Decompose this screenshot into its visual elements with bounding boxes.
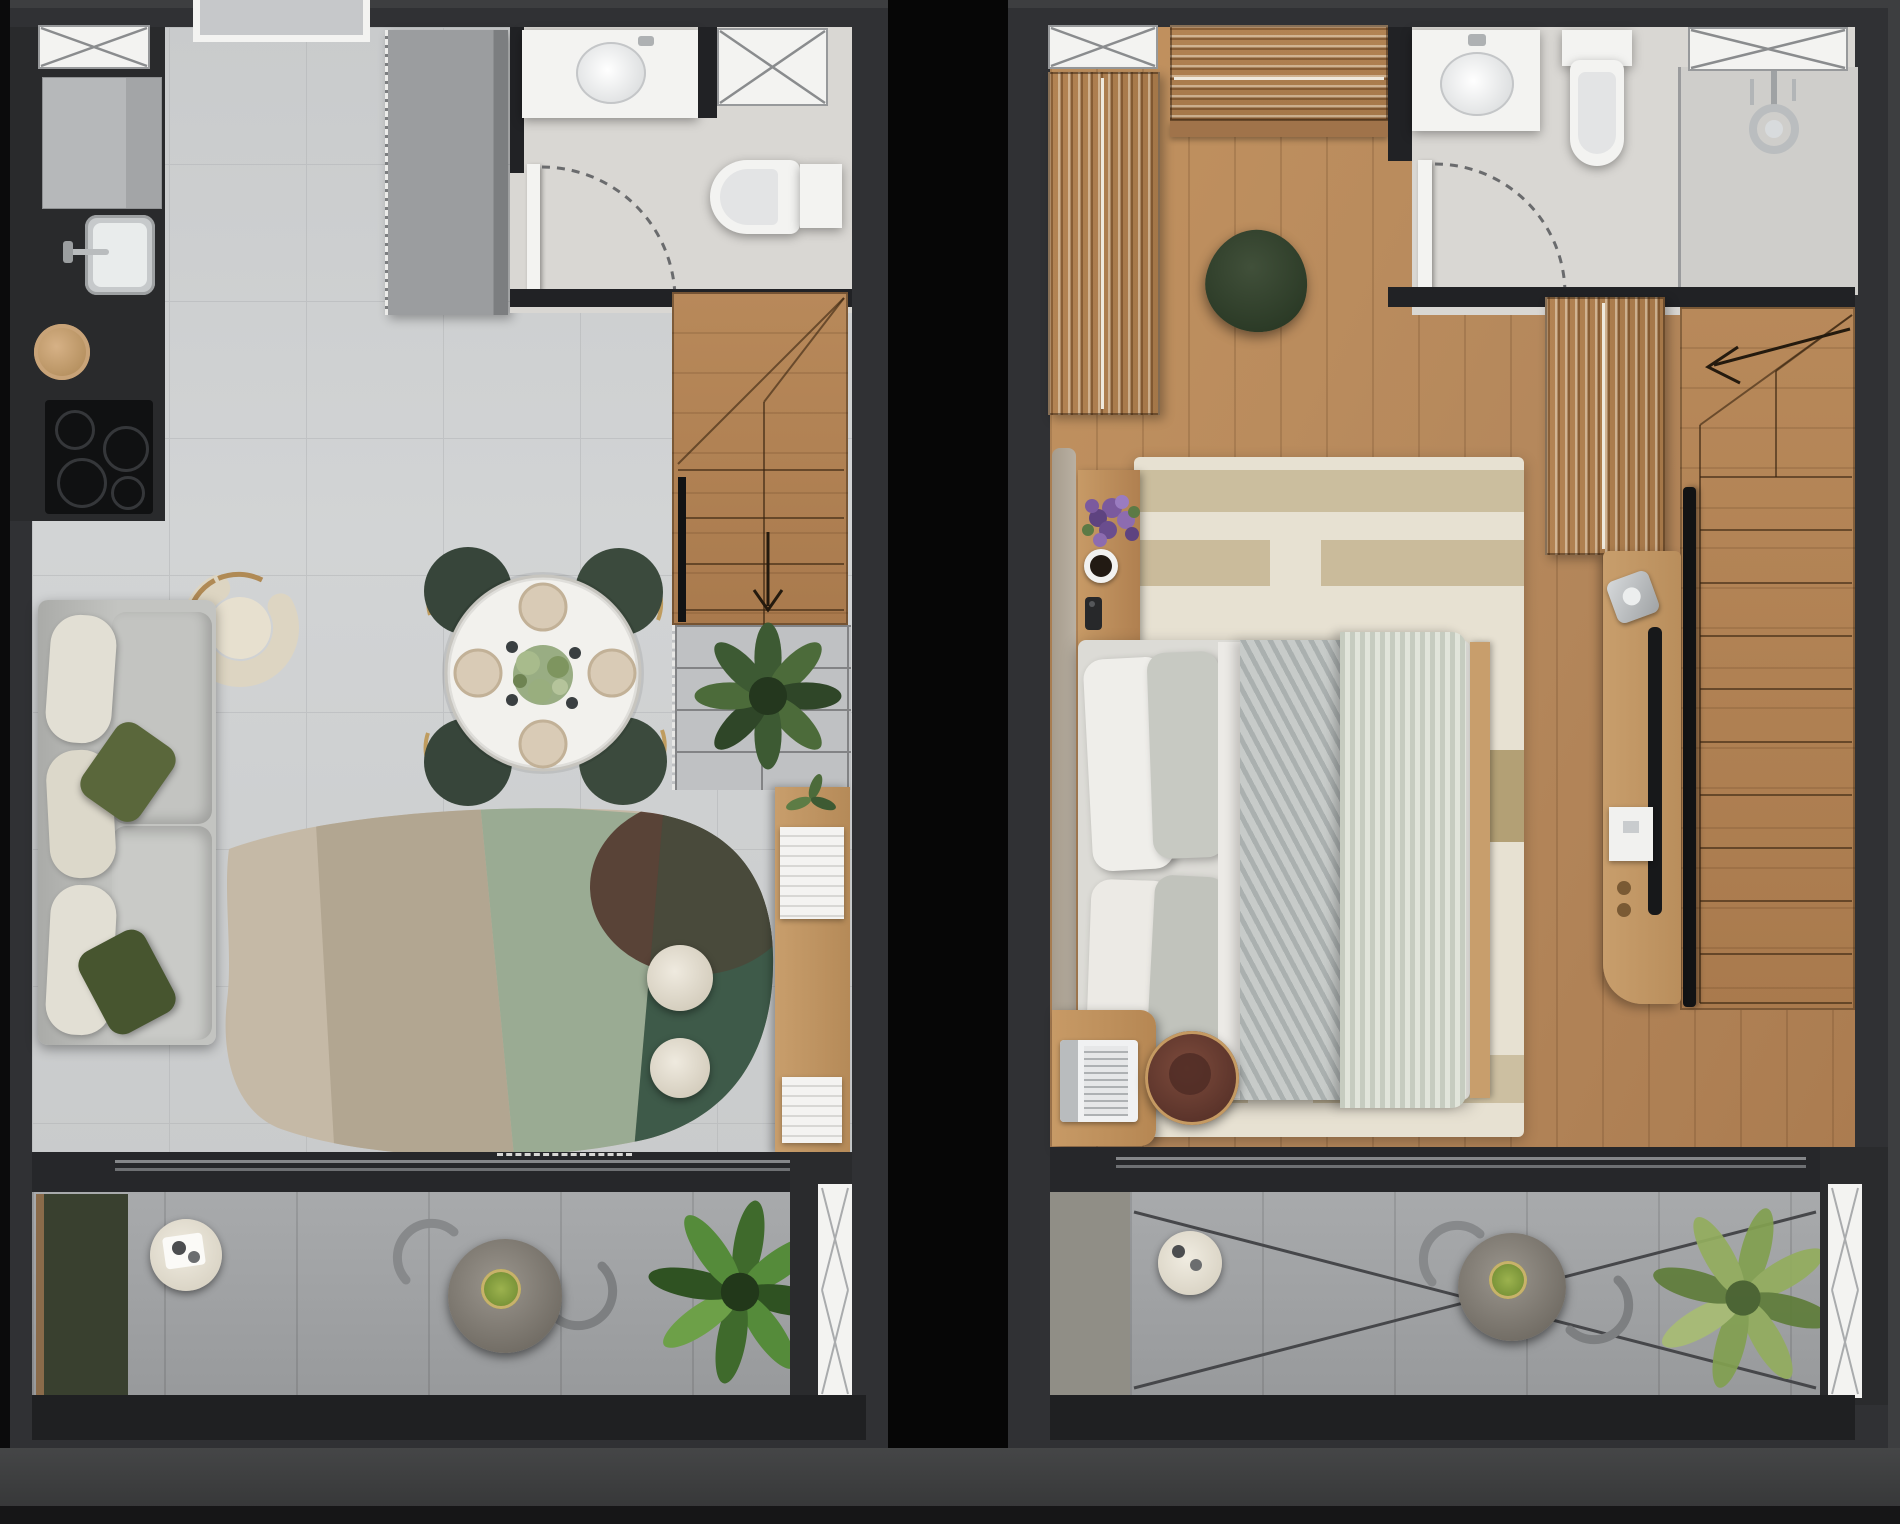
bistro-chair [1556, 1272, 1636, 1352]
sliding-door-dash [497, 1153, 632, 1156]
sink-basin [93, 223, 147, 287]
faucet-base-icon [63, 241, 73, 263]
salad-bowl-icon [1489, 1261, 1527, 1299]
wardrobe-rail [1101, 78, 1104, 409]
balcony-planter [36, 1194, 128, 1403]
burner-icon [57, 458, 107, 508]
magazines [782, 1077, 842, 1143]
rug-stripe [1134, 470, 1524, 512]
kitchen-appliance [42, 77, 162, 209]
console-groove [1648, 627, 1662, 915]
basket [34, 324, 90, 380]
closet-rail [1602, 303, 1605, 549]
balcony-plant [1663, 1192, 1823, 1404]
toilet-1 [710, 160, 800, 234]
bathroom-door-leaf [1418, 160, 1432, 300]
coffee-machine-icon [1609, 807, 1653, 861]
closet-top [1170, 25, 1388, 121]
bed-headboard [1052, 448, 1076, 1105]
burner-icon [103, 426, 149, 472]
basin-icon [1440, 52, 1514, 116]
desk [1052, 1010, 1156, 1146]
bed-footboard [1470, 642, 1490, 1098]
glazing-mullion [818, 1184, 852, 1398]
door-track [1116, 1157, 1806, 1160]
door-track [1116, 1165, 1806, 1168]
door-track [115, 1160, 848, 1163]
dining-set [400, 535, 680, 810]
balcony-wall-band [1050, 1147, 1855, 1193]
plant [700, 628, 836, 764]
pillow-gray [1146, 651, 1225, 859]
toilet-seat-icon [720, 169, 778, 225]
cup-icon [172, 1241, 186, 1255]
plan-divider-gap [888, 0, 1008, 1460]
espresso-machine-icon [1605, 569, 1661, 625]
bistro-table [1458, 1233, 1566, 1341]
bistro-table [448, 1239, 562, 1353]
stool-seat-icon [1169, 1053, 1211, 1095]
toilet-seat-icon [1578, 72, 1616, 154]
storage-cabinet [385, 30, 508, 315]
kitchen-sink [85, 215, 155, 295]
window-x [717, 28, 828, 106]
burner-icon [55, 410, 95, 450]
salad-bowl-icon [481, 1269, 521, 1309]
cup-icon [1172, 1245, 1185, 1258]
cup-icon [188, 1251, 200, 1263]
basin-icon [576, 42, 646, 104]
balcony-parapet [32, 1395, 866, 1440]
closet-2 [1545, 297, 1665, 555]
plant-sprig-icon [781, 769, 841, 829]
tv-panel [1683, 487, 1696, 1007]
bathroom-wall [698, 27, 717, 118]
shower-head-icon [1744, 71, 1804, 161]
magazines [780, 827, 844, 919]
toilet-cistern [800, 164, 842, 228]
entry-niche [193, 0, 370, 42]
glazing-mullion [1828, 1184, 1862, 1398]
faucet-icon [1468, 34, 1486, 46]
laptop-screen-icon [1060, 1040, 1078, 1122]
coffee-cup-icon [1084, 549, 1118, 583]
knob-icon [1617, 903, 1631, 917]
toilet-2 [1570, 60, 1624, 166]
vanity-1 [522, 30, 698, 118]
bathroom-wall [1388, 27, 1412, 161]
door-track [115, 1168, 848, 1171]
camera-dot-icon [1089, 601, 1095, 607]
balcony-table-small [1158, 1231, 1222, 1295]
coffee-table [647, 945, 713, 1011]
laptop [1060, 1040, 1138, 1122]
knob-icon [1617, 881, 1631, 895]
rug-stripe [1321, 540, 1524, 586]
left-floor-plan [10, 0, 888, 1448]
door-swing-arc [1432, 160, 1577, 305]
closet-front [1170, 121, 1388, 137]
flowers-icon [1070, 478, 1154, 562]
machine-detail-icon [1623, 821, 1639, 833]
knob-icon [1620, 585, 1643, 608]
rug-stripe [1134, 540, 1270, 586]
wardrobe [1048, 72, 1160, 415]
coffee-table [650, 1038, 710, 1098]
window-x [38, 25, 150, 69]
sofa [38, 600, 216, 1045]
window-x [1048, 25, 1158, 69]
right-floor-plan [1008, 0, 1888, 1448]
bathroom-door-leaf [527, 164, 540, 297]
floorplan-render [0, 0, 1900, 1524]
door-swing-arc [540, 164, 690, 304]
closet-rail [1174, 77, 1384, 80]
cooktop [45, 400, 153, 514]
phone-icon [1085, 597, 1102, 630]
laptop-keyboard-icon [1084, 1046, 1128, 1116]
media-console [1603, 551, 1681, 1004]
balcony-table-small [150, 1219, 222, 1291]
faucet-icon [638, 36, 654, 46]
vanity-2 [1412, 30, 1540, 131]
staircase-up [1680, 307, 1855, 1010]
console-table [775, 787, 850, 1155]
frame-edge-bottom [0, 1506, 1900, 1524]
quilted-blanket [1240, 640, 1344, 1100]
balcony-parapet [1050, 1395, 1855, 1440]
window-x [1688, 27, 1848, 71]
coffee-icon [1090, 555, 1112, 577]
striped-duvet [1340, 632, 1466, 1108]
sink-faucet [67, 249, 109, 255]
cup-icon [1190, 1259, 1202, 1271]
stool [1145, 1031, 1239, 1125]
staircase-down [672, 292, 848, 625]
back-cushion [44, 613, 119, 745]
frame-edge-left [0, 0, 10, 1524]
burner-icon [111, 476, 145, 510]
